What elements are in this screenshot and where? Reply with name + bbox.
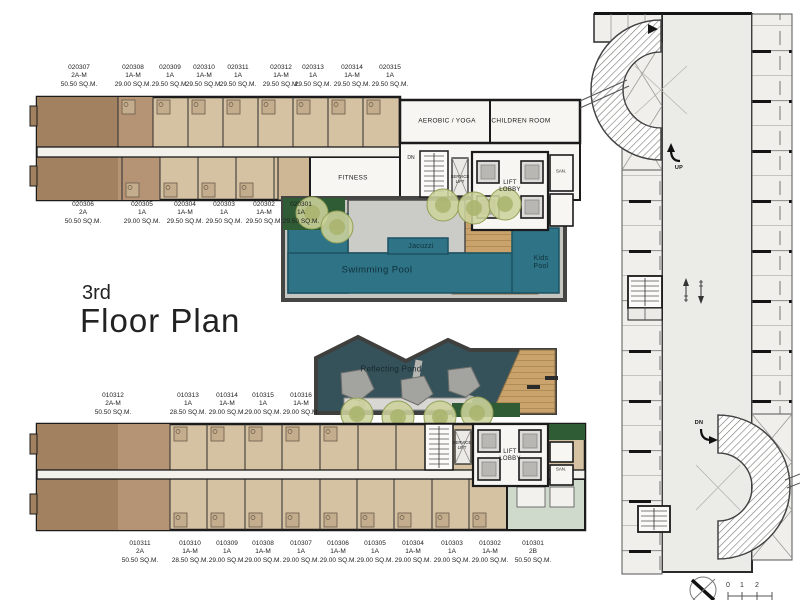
unit-label: 0203131A29.50 SQ.M. [295, 64, 332, 89]
unit-label: 0103061A-M29.00 SQ.M. [320, 540, 357, 565]
elevator [521, 196, 543, 218]
dn-label-parking: DN [695, 420, 704, 426]
garage-stairs [638, 506, 670, 532]
unit-label: 0203021A-M29.50 SQ.M. [246, 201, 283, 226]
aerobic-yoga-label: AEROBIC / YOGA [418, 117, 476, 124]
elevator [477, 161, 499, 183]
scale-mark: 1 [740, 582, 744, 589]
unit-label: 0103151A29.00 SQ.M. [245, 392, 282, 417]
unit-label: 0103141A-M29.00 SQ.M. [209, 392, 246, 417]
elevator [478, 458, 500, 480]
service-lift-label-bottom: SERVICELIFT [453, 441, 472, 451]
unit-label: 0103041A-M29.00 SQ.M. [395, 540, 432, 565]
scale-bar [728, 592, 772, 600]
elevator [519, 458, 541, 480]
kids-pool-label: KidsPool [533, 255, 548, 271]
unit-label: 0103051A29.00 SQ.M. [357, 540, 394, 565]
unit-label: 0203111A29.50 SQ.M. [220, 64, 257, 89]
unit-label: 0103131A28.50 SQ.M. [170, 392, 207, 417]
unit-label: 0103031A29.00 SQ.M. [434, 540, 471, 565]
page-title: Floor Plan [80, 302, 240, 340]
reflecting-pond-label: Reflecting Pond [361, 364, 422, 373]
up-label: UP [675, 165, 683, 171]
garage-stairs [628, 276, 662, 308]
unit-label: 0203062A50.50 SQ.M. [65, 201, 102, 226]
parking-garage [580, 12, 800, 574]
unit-label: 0103012B50.50 SQ.M. [515, 540, 552, 565]
reflecting-pond [316, 337, 558, 433]
san-label-top: SAN. [556, 170, 566, 175]
unit-label: 0103161A-M29.00 SQ.M. [283, 392, 320, 417]
unit-label: 0103081A-M29.00 SQ.M. [245, 540, 282, 565]
unit-label: 0203141A-M29.50 SQ.M. [334, 64, 371, 89]
service-lift-label-top: SERVICELIFT [451, 175, 470, 185]
jacuzzi-label: Jacuzzi [408, 243, 433, 251]
floor-plan-canvas: 3rd Floor Plan 0203072A-M50.50 SQ.M. 020… [0, 0, 800, 600]
scale-mark: 2 [755, 582, 759, 589]
unit-label: 0203151A29.50 SQ.M. [372, 64, 409, 89]
lift-lobby-label-bottom: LIFTLOBBY [499, 449, 521, 463]
stairs [425, 424, 453, 470]
floorplan-graphics [0, 0, 800, 600]
swimming-pool-label: Swimming Pool [342, 266, 413, 277]
unit-label: 0203051A29.00 SQ.M. [124, 201, 161, 226]
unit-label: 0203101A-M29.50 SQ.M. [186, 64, 223, 89]
unit-label: 0103091A29.00 SQ.M. [209, 540, 246, 565]
lift-lobby-label-top: LIFTLOBBY [499, 180, 521, 194]
fitness-label: FITNESS [338, 174, 368, 181]
unit-label: 0103112A50.50 SQ.M. [122, 540, 159, 565]
unit-label: 0103101A-M28.50 SQ.M. [172, 540, 209, 565]
unit-label: 0203072A-M50.50 SQ.M. [61, 64, 98, 89]
unit-label: 0203031A29.50 SQ.M. [206, 201, 243, 226]
north-arrow-icon [690, 577, 716, 600]
elevator [519, 430, 541, 452]
unit-label: 0203041A-M29.50 SQ.M. [167, 201, 204, 226]
unit-label: 0103071A29.00 SQ.M. [283, 540, 320, 565]
san-label-bottom: SAN. [556, 468, 566, 473]
unit-label: 0103122A-M50.50 SQ.M. [95, 392, 132, 417]
hedge [548, 424, 585, 440]
scale-mark: 0 [726, 582, 730, 589]
unit-label: 0103021A-M29.00 SQ.M. [472, 540, 509, 565]
children-room-label: CHILDREN ROOM [491, 117, 550, 124]
elevator [478, 430, 500, 452]
dn-label-top: DN [407, 156, 414, 162]
unit-label: 0203091A29.50 SQ.M. [152, 64, 189, 89]
unit-label: 0203011A29.50 SQ.M. [283, 201, 320, 226]
unit-label: 0203081A-M29.00 SQ.M. [115, 64, 152, 89]
elevator [521, 161, 543, 183]
